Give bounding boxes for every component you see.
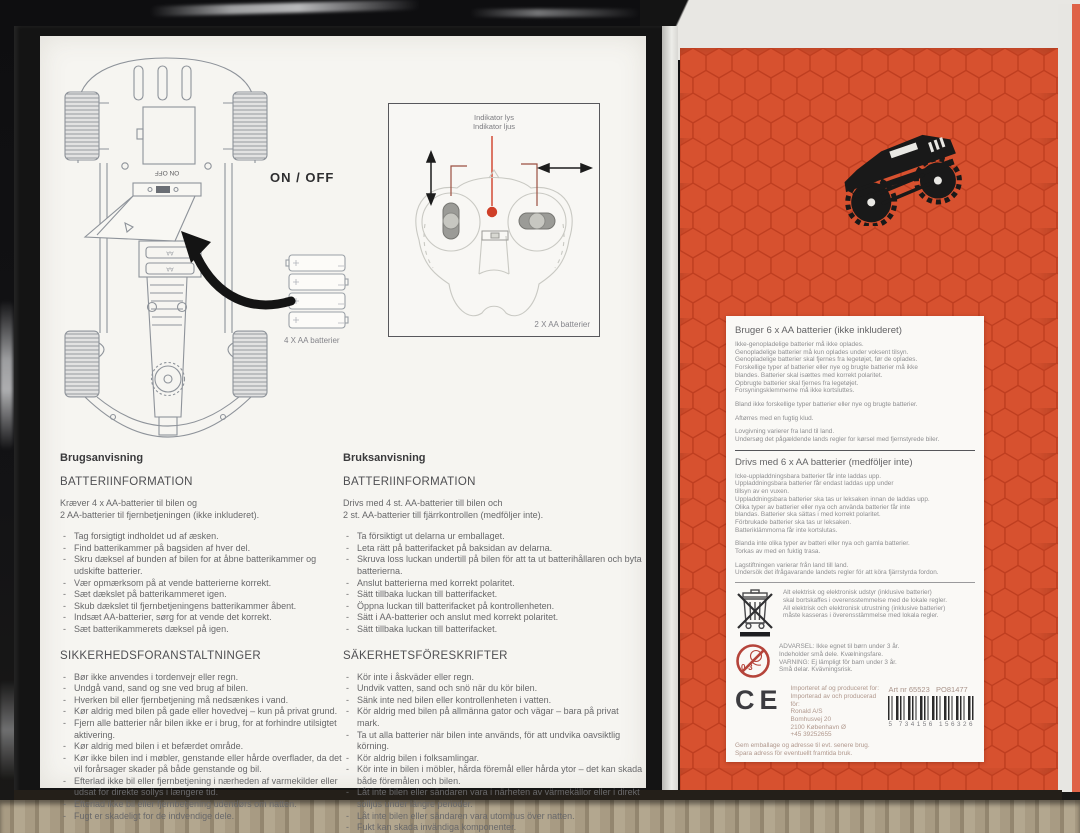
text-line: Vær opmærksom på at vende batterierne ko… — [60, 578, 346, 590]
text-line: Ronald A/S — [791, 708, 881, 716]
text-line: tillsyn av en vuxen. — [735, 488, 975, 496]
text-line: Torkas av med en fuktig trasa. — [735, 548, 975, 556]
text-line: Undersøg det pågældende lands regler for… — [735, 436, 975, 444]
text-line: Sæt dækslet på batterikammeret igen. — [60, 589, 346, 601]
compartment-switch-label: ON OFF — [155, 169, 180, 176]
text-line: Indsæt AA-batterier, sørg for at vende d… — [60, 612, 346, 624]
remote-batteries-label: 2 X AA batterier — [534, 320, 590, 329]
age-warning-icon: 0-3 — [735, 643, 771, 679]
swedish-battery-steps: Ta försiktigt ut delarna ur emballaget.L… — [343, 531, 643, 635]
text-line: Sæt batterikammerets dæksel på igen. — [60, 624, 346, 636]
swedish-mix-notes: Blanda inte olika typer av batteri eller… — [735, 540, 975, 555]
danish-clean-note: Aftørres med en fugtig klud. — [735, 415, 975, 423]
divider — [735, 450, 975, 451]
text-line: Efterlad ikke bil eller fjernbetjening u… — [60, 799, 346, 811]
text-line: Ta försiktigt ut delarna ur emballaget. — [343, 531, 643, 543]
text-line: Sänk inte ned bilen eller kontrollenhete… — [343, 695, 643, 707]
swedish-title: Bruksanvisning — [343, 452, 643, 464]
age-warning-row: 0-3 ADVARSEL: Ikke egnet til børn under … — [735, 643, 975, 679]
text-line: Sätt i AA-batterier och anslut med korre… — [343, 612, 643, 624]
barcode-digits: 5 734156 156326 — [888, 721, 975, 728]
danish-battery-header: BATTERIINFORMATION — [60, 476, 346, 488]
weee-text: Alt elektrisk og elektronisk udstyr (ink… — [783, 589, 947, 620]
text-line: Undgå vand, sand og sne ved brug af bile… — [60, 683, 346, 695]
text-line: Uppladdningsbara batterier ska tas ur le… — [735, 496, 975, 504]
text-line: Undvik vatten, sand och snö när du kör b… — [343, 683, 643, 695]
swedish-battery-intro: Drivs med 4 st. AA-batterier till bilen … — [343, 498, 643, 521]
on-off-label: ON / OFF — [270, 170, 334, 185]
text-line: Leta rätt på batterifacket på baksidan a… — [343, 543, 643, 555]
text-line: Genopladelige batterier skal fjernes fra… — [735, 356, 975, 364]
text-line: Forsyningsklemmerne må ikke kortsluttes. — [735, 387, 975, 395]
barcode — [888, 696, 975, 720]
weee-bin-icon — [735, 589, 775, 637]
text-line: Kör aldrig bilen i folksamlingar. — [343, 753, 643, 765]
text-line: Skru dæksel af bunden af bilen for at åb… — [60, 554, 346, 577]
swedish-battery-title: Drivs med 6 x AA batterier (medföljer in… — [735, 457, 975, 468]
text-line: ADVARSEL: Ikke egnet til børn under 3 år… — [779, 643, 899, 651]
text-line: Genopladelige batterier må kun oplades u… — [735, 349, 975, 357]
text-line: Kör inte i åskväder eller regn. — [343, 672, 643, 684]
keep-packaging-note: Gem emballage og adresse til evt. senere… — [735, 742, 975, 757]
swedish-law-notes: Lagstiftningen varierar från land till l… — [735, 562, 975, 577]
text-line: Skruva loss luckan undertill på bilen fö… — [343, 554, 643, 577]
indicator-label-sv: Indikator ljus — [389, 122, 599, 131]
text-line: Bør ikke anvendes i tordenvejr eller reg… — [60, 672, 346, 684]
text-line: Importeret af og produceret for: — [791, 685, 881, 693]
danish-battery-intro: Kræver 4 x AA-batterier til bilen og2 AA… — [60, 498, 346, 521]
text-line: Låt inte bilen eller sändaren vara utomh… — [343, 811, 643, 823]
marble-streak — [150, 0, 420, 17]
text-line: måste kasseras i överensstämmelse med lo… — [783, 612, 947, 620]
text-line: Öppna luckan till batterifacket på kontr… — [343, 601, 643, 613]
danish-law-notes: Lovgivning varierer fra land til land.Un… — [735, 428, 975, 443]
box-right-edge-red — [1072, 4, 1080, 792]
remote-diagram-box: Indikator lys Indikator ljus — [388, 103, 600, 337]
danish-safety-list: Bør ikke anvendes i tordenvejr eller reg… — [60, 672, 346, 823]
text-line: Tag forsigtigt indholdet ud af æsken. — [60, 531, 346, 543]
text-line: Kør aldrig med bilen i et befærdet områd… — [60, 741, 346, 753]
text-line: Kör aldrig med bilen på allmänna gator o… — [343, 706, 643, 729]
text-line: Lovgivning varierer fra land til land. — [735, 428, 975, 436]
danish-battery-title: Bruger 6 x AA batterier (ikke inkluderet… — [735, 325, 975, 336]
box-fold-spine — [662, 26, 678, 790]
divider — [735, 582, 975, 583]
text-line: Importerad av och producerad för: — [791, 693, 881, 708]
text-line: Indeholder små dele. Kvælningsfare. — [779, 651, 899, 659]
text-line: Kör inte in bilen i möbler, hårda föremå… — [343, 764, 643, 787]
swedish-safety-header: SÄKERHETSFÖRESKRIFTER — [343, 650, 643, 662]
text-line: Förbrukade batterier ska tas ur leksaken… — [735, 519, 975, 527]
car-batteries-label: 4 X AA batterier — [284, 336, 340, 345]
text-line: Batteriklämmorna får inte kortslutas. — [735, 527, 975, 535]
danish-mix-note: Bland ikke forskellige typer batterier e… — [735, 401, 975, 409]
article-number: Art nr 65523 — [888, 685, 929, 694]
text-line: Låt inte bilen eller sändaren vara i när… — [343, 787, 643, 810]
age-warning-text: ADVARSEL: Ikke egnet til børn under 3 år… — [779, 643, 899, 674]
text-line: Forskellige typer af batterier eller nye… — [735, 364, 975, 372]
swedish-battery-rules: Icke-uppladdningsbara batterier får inte… — [735, 473, 975, 535]
text-line: Bomhusvej 20 — [791, 716, 881, 724]
barcode-block: Art nr 65523 PO81477 5 734156 156326 — [888, 685, 975, 728]
text-line: Sätt tillbaka luckan till batterifacket. — [343, 589, 643, 601]
text-line: Uppladdningsbara batterier får endast la… — [735, 480, 975, 488]
battery-slot-label: AA — [166, 250, 174, 256]
text-line: Hverken bil eller fjernbetjening må neds… — [60, 695, 346, 707]
text-line: Drivs med 4 st. AA-batterier till bilen … — [343, 498, 643, 510]
danish-safety-header: SIKKERHEDSFORANSTALTNINGER — [60, 650, 346, 662]
indicator-light-label: Indikator lys Indikator ljus — [389, 113, 599, 131]
text-line: Fukt kan skada invändiga komponenter. — [343, 822, 643, 833]
text-line: +45 39252655 — [791, 731, 881, 739]
age-badge-text: 0-3 — [741, 663, 753, 672]
text-line: Anslut batterierna med korrekt polaritet… — [343, 578, 643, 590]
ce-mark: CE — [735, 685, 783, 715]
text-line: Kør aldrig med bilen på gade eller hoved… — [60, 706, 346, 718]
text-line: Kræver 4 x AA-batterier til bilen og — [60, 498, 346, 510]
danish-battery-steps: Tag forsigtigt indholdet ud af æsken.Fin… — [60, 531, 346, 635]
text-line: blandas. Batterier ska sättas i med korr… — [735, 511, 975, 519]
po-number: PO81477 — [936, 685, 968, 694]
box-back-photo: ON OFF AA AA ON / OFF 4 X AA batterier I… — [0, 0, 1080, 833]
danish-battery-rules: Ikke-genopladelige batterier må ikke opl… — [735, 341, 975, 395]
text-line: blandes. Batterier skal isættes med korr… — [735, 372, 975, 380]
text-line: Alt elektrisk og elektronisk udstyr (ink… — [783, 589, 947, 597]
text-line: Skub dækslet til fjernbetjeningens batte… — [60, 601, 346, 613]
indicator-label-da: Indikator lys — [389, 113, 599, 122]
text-line: Fjern alle batterier når bilen ikke er i… — [60, 718, 346, 741]
importer-address: Importeret af og produceret for:Importer… — [791, 685, 881, 739]
text-line: Blanda inte olika typer av batteri eller… — [735, 540, 975, 548]
text-line: 2 AA-batterier til fjernbetjeningen (ikk… — [60, 510, 346, 522]
text-line: Ta ut alla batterier när bilen inte anvä… — [343, 730, 643, 753]
text-line: Ikke-genopladelige batterier må ikke opl… — [735, 341, 975, 349]
text-line: Olika typer av batterier eller nya och a… — [735, 504, 975, 512]
weee-row: Alt elektrisk og elektronisk udstyr (ink… — [735, 589, 975, 637]
text-line: Find batterikammer på bagsiden af hver d… — [60, 543, 346, 555]
remote-controller-drawing — [389, 104, 599, 334]
battery-slot-label: AA — [166, 266, 174, 272]
battery-info-box: Bruger 6 x AA batterier (ikke inkluderet… — [726, 316, 984, 762]
swedish-safety-list: Kör inte i åskväder eller regn.Undvik va… — [343, 672, 643, 833]
stick-direction-arrows — [427, 152, 591, 204]
text-line: Små delar. Kvävningsrisk. — [779, 666, 899, 674]
swedish-instructions-column: Bruksanvisning BATTERIINFORMATION Drivs … — [343, 452, 643, 833]
car-underside-diagram: ON OFF AA AA — [55, 45, 355, 445]
text-line: Sätt tillbaka luckan till batterifacket. — [343, 624, 643, 636]
text-line: Fugt er skadeligt for de indvendige dele… — [60, 811, 346, 823]
article-number-line: Art nr 65523 PO81477 — [888, 685, 975, 694]
text-line: 2100 København Ø — [791, 724, 881, 732]
text-line: Efterlad ikke bil eller fjernbetjening i… — [60, 776, 346, 799]
swedish-battery-header: BATTERIINFORMATION — [343, 476, 643, 488]
text-line: Undersök det ifrågavarande landets regle… — [735, 569, 975, 577]
marble-streak — [0, 300, 13, 450]
jeep-logo — [833, 126, 973, 226]
indicator-dot — [487, 207, 497, 217]
box-right-edge-white — [1058, 4, 1072, 792]
text-line: Spara adress för eventuellt framtida bru… — [735, 750, 975, 758]
text-line: 2 st. AA-batterier till fjärrkontrollen … — [343, 510, 643, 522]
insert-arrow — [181, 231, 291, 305]
danish-title: Brugsanvisning — [60, 452, 346, 464]
aa-battery-stack — [286, 255, 348, 328]
text-line: skal bortskaffes i overensstemmelse med … — [783, 597, 947, 605]
marble-streak — [470, 9, 640, 17]
ce-address-barcode-row: CE Importeret af og produceret for:Impor… — [735, 685, 975, 739]
text-line: Kør ikke bilen ind i møbler, genstande e… — [60, 753, 346, 776]
danish-instructions-column: Brugsanvisning BATTERIINFORMATION Kræver… — [60, 452, 346, 822]
text-line: Gem emballage og adresse til evt. senere… — [735, 742, 975, 750]
